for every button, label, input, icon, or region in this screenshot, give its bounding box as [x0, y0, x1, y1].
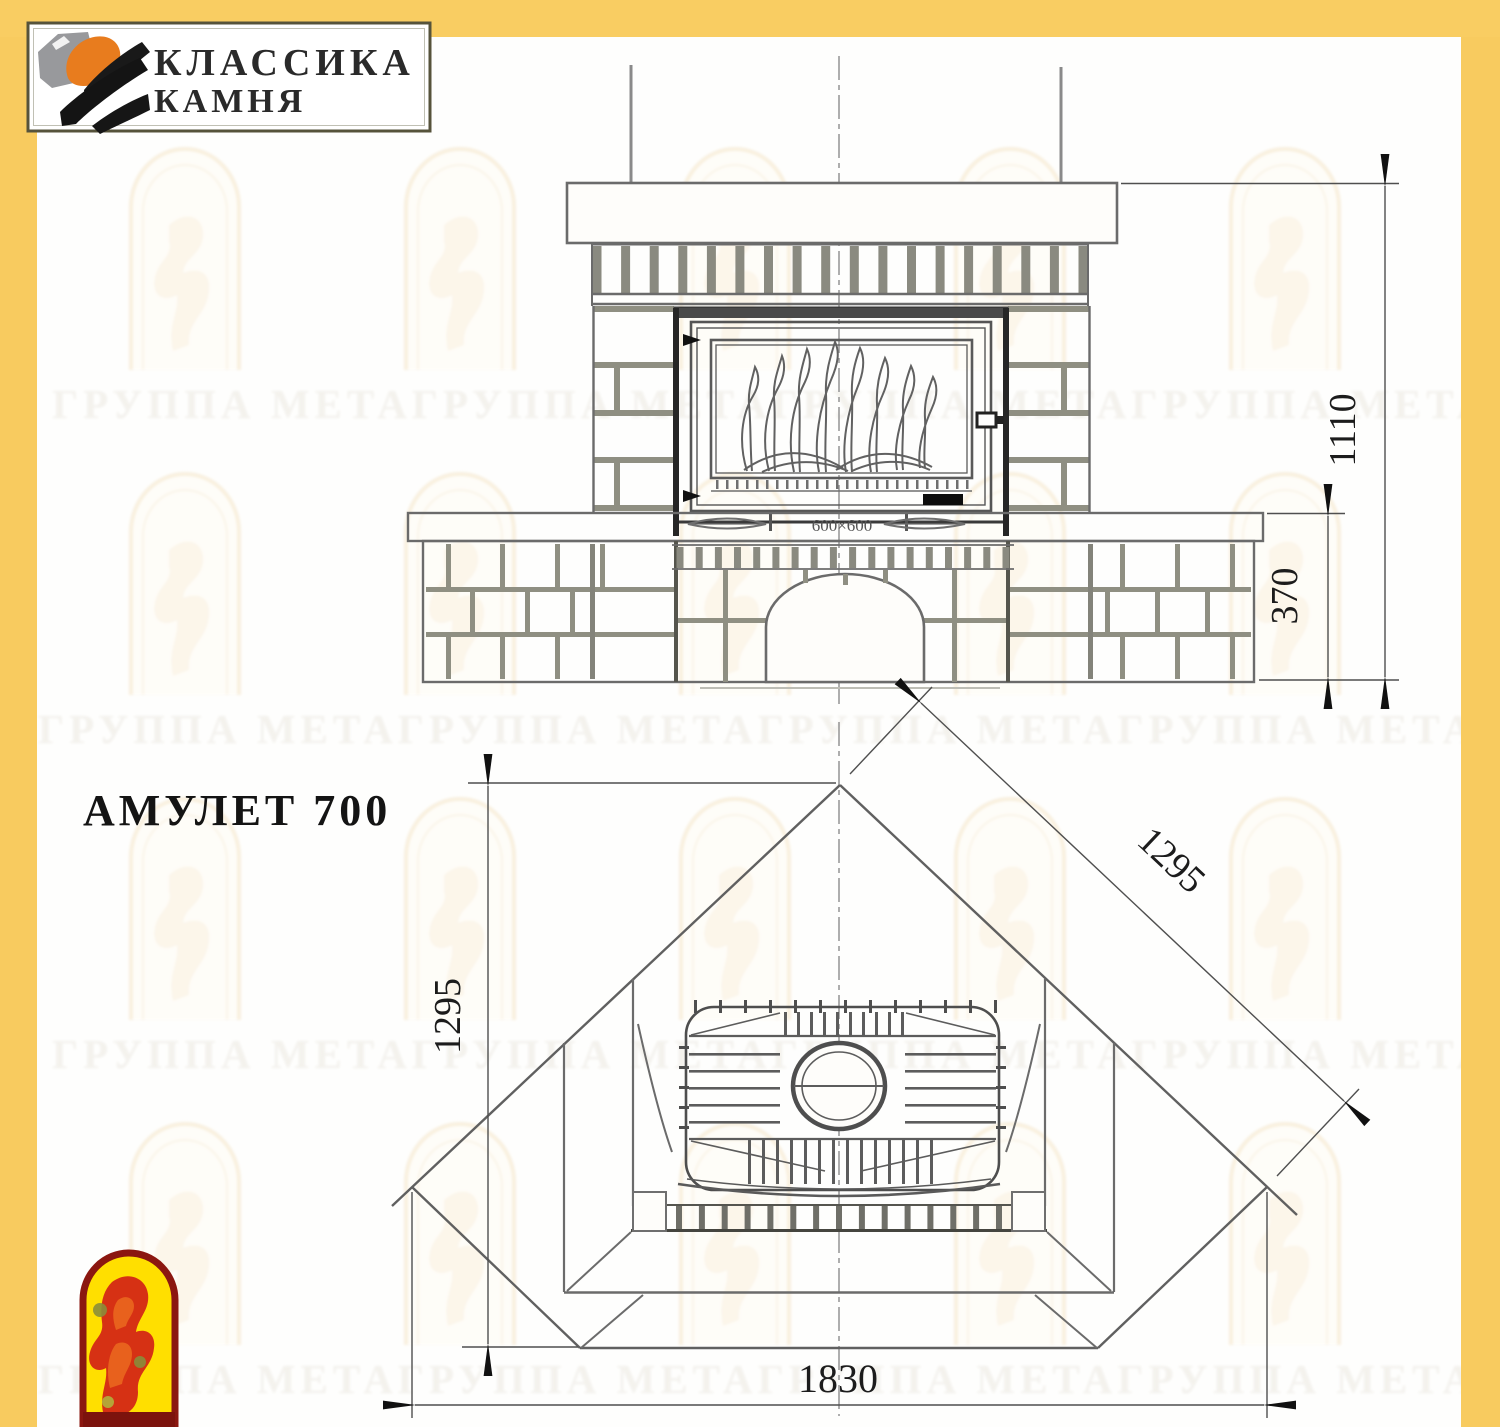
- svg-text:1110: 1110: [1322, 393, 1364, 466]
- svg-text:1830: 1830: [798, 1356, 878, 1401]
- svg-text:АМУЛЕТ 700: АМУЛЕТ 700: [83, 786, 391, 835]
- svg-text:КЛАССИКА: КЛАССИКА: [154, 42, 415, 84]
- svg-text:ГРУППА МЕТАГРУППА МЕТАГРУППА М: ГРУППА МЕТАГРУППА МЕТАГРУППА МЕТАГРУППА …: [38, 1356, 1477, 1402]
- svg-text:600×600: 600×600: [812, 516, 873, 535]
- svg-text:КАМНЯ: КАМНЯ: [154, 83, 306, 120]
- svg-text:ГРУППА МЕТАГРУППА МЕТАГРУППА М: ГРУППА МЕТАГРУППА МЕТАГРУППА МЕТАГРУППА …: [38, 706, 1477, 752]
- svg-text:1295: 1295: [427, 978, 469, 1054]
- svg-text:370: 370: [1264, 568, 1306, 625]
